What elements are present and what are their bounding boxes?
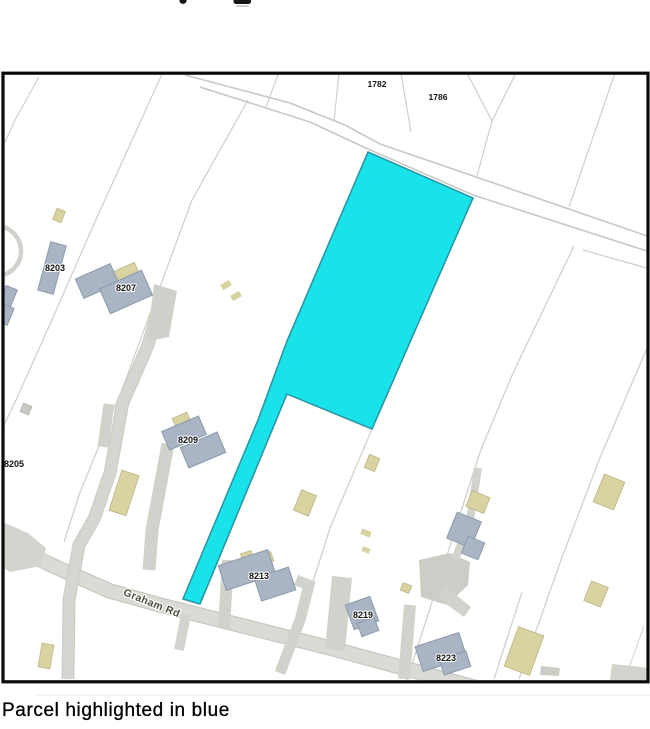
svg-text:8219: 8219 xyxy=(353,610,373,620)
svg-text:8223: 8223 xyxy=(436,653,456,663)
svg-text:8205: 8205 xyxy=(4,459,24,469)
svg-text:Parcel highlighted in blue: Parcel highlighted in blue xyxy=(2,700,230,721)
svg-text:8209: 8209 xyxy=(178,435,198,445)
svg-text:1786: 1786 xyxy=(429,92,448,102)
svg-text:8207: 8207 xyxy=(116,283,136,293)
svg-text:8213: 8213 xyxy=(249,571,269,581)
svg-text:1782: 1782 xyxy=(368,79,387,89)
svg-text:8203: 8203 xyxy=(45,263,65,273)
